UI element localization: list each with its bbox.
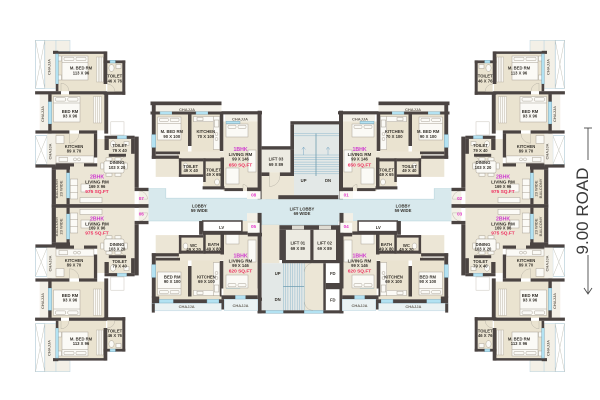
svg-text:49 X 20: 49 X 20 [399,247,414,252]
svg-text:CHAJJA: CHAJJA [40,293,45,309]
svg-text:99 X 146: 99 X 146 [232,263,249,268]
svg-text:79 X 40: 79 X 40 [112,263,127,268]
svg-text:07: 07 [139,196,145,201]
svg-text:49 X 80: 49 X 80 [379,247,394,252]
svg-text:69 X 100: 69 X 100 [198,279,215,284]
svg-text:975 SQ.FT: 975 SQ.FT [491,189,515,195]
svg-text:CHAJJA: CHAJJA [46,59,51,75]
svg-text:169 X 96: 169 X 96 [495,184,512,189]
svg-text:620 SQ.FT: 620 SQ.FT [348,269,372,275]
svg-text:79 X 40: 79 X 40 [473,263,488,268]
svg-text:BALCONY: BALCONY [538,216,543,236]
svg-text:FD: FD [330,298,336,303]
svg-text:05: 05 [251,224,257,229]
svg-text:9.00 ROAD: 9.00 ROAD [573,168,592,255]
svg-text:01: 01 [344,192,350,197]
svg-text:169 X 96: 169 X 96 [495,226,512,231]
svg-text:46 X 76: 46 X 76 [478,333,493,338]
svg-text:103 X 20: 103 X 20 [109,246,126,251]
svg-text:975 SQ.FT: 975 SQ.FT [85,231,109,237]
svg-text:620 SQ.FT: 620 SQ.FT [229,269,253,275]
svg-text:CHAJJA: CHAJJA [405,107,421,112]
svg-text:BALCONY: BALCONY [538,178,543,198]
svg-text:975 SQ.FT: 975 SQ.FT [85,189,109,195]
svg-text:49 X 40: 49 X 40 [402,168,417,173]
svg-text:CHAJJA: CHAJJA [40,106,45,122]
svg-text:23 WIDE: 23 WIDE [533,218,538,234]
svg-text:89 X 70: 89 X 70 [519,149,534,154]
svg-text:90 X 100: 90 X 100 [420,134,437,139]
svg-text:CHAJJA: CHAJJA [552,293,557,309]
svg-text:CHAJJA: CHAJJA [351,303,367,308]
svg-text:59 WIDE: 59 WIDE [395,208,412,213]
svg-text:90 X 100: 90 X 100 [164,279,181,284]
svg-text:99 X 146: 99 X 146 [351,263,368,268]
svg-text:113 X 96: 113 X 96 [73,341,90,346]
svg-text:23 WIDE: 23 WIDE [59,180,64,196]
svg-text:93 X 96: 93 X 96 [63,298,78,303]
svg-text:79 X 40: 79 X 40 [473,148,488,153]
svg-text:FD: FD [330,271,336,276]
svg-text:UP: UP [275,271,281,276]
svg-text:49 X 65: 49 X 65 [206,172,221,177]
svg-text:CHAJJA: CHAJJA [47,255,52,271]
svg-text:CHAJJA: CHAJJA [552,106,557,122]
svg-text:03: 03 [457,212,463,217]
svg-text:93 X 96: 93 X 96 [523,298,538,303]
svg-text:CHAJJA: CHAJJA [232,303,248,308]
svg-text:49 X 20: 49 X 20 [186,247,201,252]
svg-text:70 X 100: 70 X 100 [386,134,403,139]
svg-text:49 X 80: 49 X 80 [206,247,221,252]
svg-text:CHAJJA: CHAJJA [546,59,551,75]
svg-text:103 X 20: 103 X 20 [109,165,126,170]
svg-text:89 X 70: 89 X 70 [67,149,82,154]
svg-text:06: 06 [139,212,145,217]
svg-text:113 X 96: 113 X 96 [73,70,90,75]
svg-text:46 X 76: 46 X 76 [478,78,493,83]
svg-text:103 X 20: 103 X 20 [475,165,492,170]
svg-text:650 SQ.FT: 650 SQ.FT [229,162,253,168]
svg-text:70 X 100: 70 X 100 [197,134,214,139]
svg-text:49 X 65: 49 X 65 [379,172,394,177]
svg-text:CHAJJA: CHAJJA [179,304,195,309]
svg-text:LIFT 03: LIFT 03 [269,157,284,162]
svg-text:93 X 96: 93 X 96 [523,114,538,119]
svg-text:103 X 20: 103 X 20 [475,246,492,251]
svg-text:69 X 89: 69 X 89 [291,246,306,251]
svg-text:79 X 40: 79 X 40 [112,148,127,153]
svg-text:23 WIDE: 23 WIDE [533,180,538,196]
svg-text:93 X 96: 93 X 96 [63,114,78,119]
svg-text:650 SQ.FT: 650 SQ.FT [348,162,372,168]
svg-text:46 X 76: 46 X 76 [108,333,123,338]
svg-text:CHAJJA: CHAJJA [546,340,551,356]
svg-text:90 X 100: 90 X 100 [163,134,180,139]
svg-text:LV: LV [376,225,381,230]
svg-text:CHAJJA: CHAJJA [179,107,195,112]
svg-text:113 X 96: 113 X 96 [511,341,528,346]
svg-text:69 X 89: 69 X 89 [269,162,284,167]
svg-text:69 WIDE: 69 WIDE [294,211,311,216]
svg-text:59 WIDE: 59 WIDE [191,208,208,213]
svg-text:UP: UP [301,178,307,183]
svg-text:113 X 96: 113 X 96 [511,70,528,75]
svg-text:CHAJJA: CHAJJA [405,304,421,309]
svg-text:69 X 89: 69 X 89 [317,246,332,251]
svg-text:CHAJJA: CHAJJA [545,255,550,271]
svg-text:CHAJJA: CHAJJA [545,143,550,159]
svg-text:23 WIDE: 23 WIDE [59,218,64,234]
svg-text:89 X 70: 89 X 70 [67,263,82,268]
svg-text:169 X 96: 169 X 96 [89,226,106,231]
svg-text:08: 08 [251,192,257,197]
svg-text:LV: LV [219,225,224,230]
svg-text:99 X 146: 99 X 146 [351,156,368,161]
svg-text:169 X 96: 169 X 96 [89,184,106,189]
svg-text:89 X 70: 89 X 70 [519,263,534,268]
svg-text:975 SQ.FT: 975 SQ.FT [491,231,515,237]
svg-text:CHAJJA: CHAJJA [47,143,52,159]
svg-text:69 X 100: 69 X 100 [385,279,402,284]
svg-text:02: 02 [457,196,463,201]
svg-text:CHAJJA: CHAJJA [46,340,51,356]
svg-text:CHAJJA: CHAJJA [352,117,368,122]
svg-text:49 X 40: 49 X 40 [183,168,198,173]
svg-text:46 X 76: 46 X 76 [108,78,123,83]
svg-text:CHAJJA: CHAJJA [232,117,248,122]
svg-text:90 X 100: 90 X 100 [419,279,436,284]
svg-text:DN: DN [275,297,281,302]
svg-text:DN: DN [325,178,331,183]
svg-text:04: 04 [344,224,350,229]
svg-text:99 X 146: 99 X 146 [232,156,249,161]
